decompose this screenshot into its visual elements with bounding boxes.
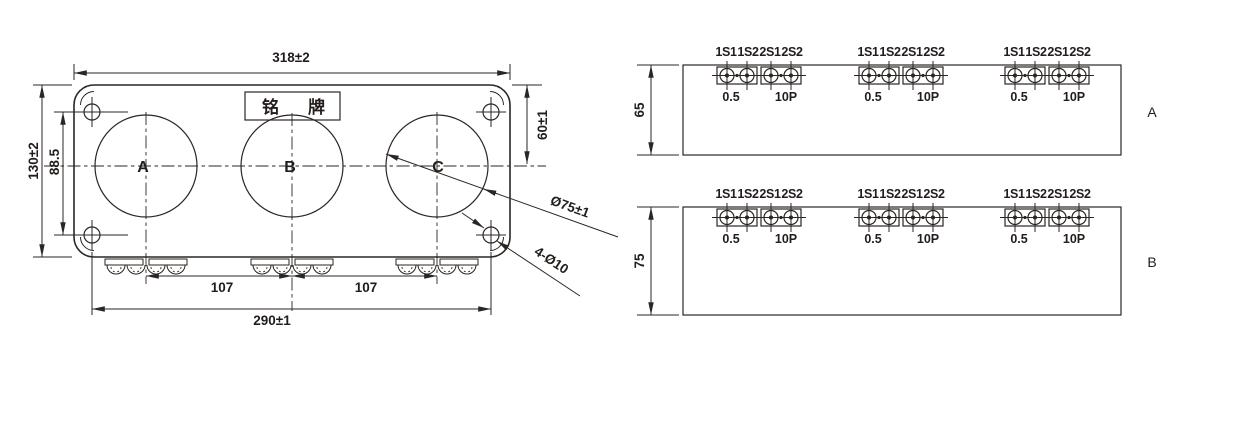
view-label-b: B [1147,254,1156,270]
dim-hole-horizontal-pitch: 290±1 [92,252,491,328]
svg-text:107: 107 [211,280,234,295]
dim-top-to-center: 60±1 [512,85,550,164]
svg-text:60±1: 60±1 [535,110,550,140]
svg-text:107: 107 [355,280,378,295]
phase-a-label: A [137,159,149,176]
svg-text:290±1: 290±1 [253,313,291,328]
svg-text:130±2: 130±2 [26,142,41,179]
front-view: A B C 铭牌 318±2 130±2 [26,50,618,328]
svg-text:75: 75 [632,253,647,269]
centerlines [44,112,546,311]
phase-b-label: B [284,159,296,176]
dim-phase-pitch: 107 107 [146,276,437,295]
svg-text:4-Ø10: 4-Ø10 [532,244,572,277]
nameplate: 铭牌 [245,92,354,120]
svg-text:65: 65 [632,102,647,118]
dim-depth-a: 65 [632,65,679,155]
dim-depth-b: 75 [632,207,679,315]
phase-c-label: C [432,159,444,176]
svg-text:88.5: 88.5 [47,148,62,175]
dim-hole-vertical-pitch: 88.5 [47,112,63,235]
svg-text:318±2: 318±2 [272,50,309,65]
technical-drawing: 1S1 1S2 2S1 2S2 0.5 10P [0,0,1248,432]
body-outline-a [683,65,1121,155]
leader-mount-holes: 4-Ø10 [462,213,580,296]
terminal-view-a: 65 A [632,45,1157,155]
view-label-a: A [1147,104,1157,120]
svg-text:Ø75±1: Ø75±1 [548,193,592,221]
drawing-canvas: 1S1 1S2 2S1 2S2 0.5 10P [0,0,1248,432]
nameplate-label: 铭牌 [262,97,354,117]
terminal-view-b: 75 B [632,187,1157,315]
dim-overall-width: 318±2 [74,50,510,80]
